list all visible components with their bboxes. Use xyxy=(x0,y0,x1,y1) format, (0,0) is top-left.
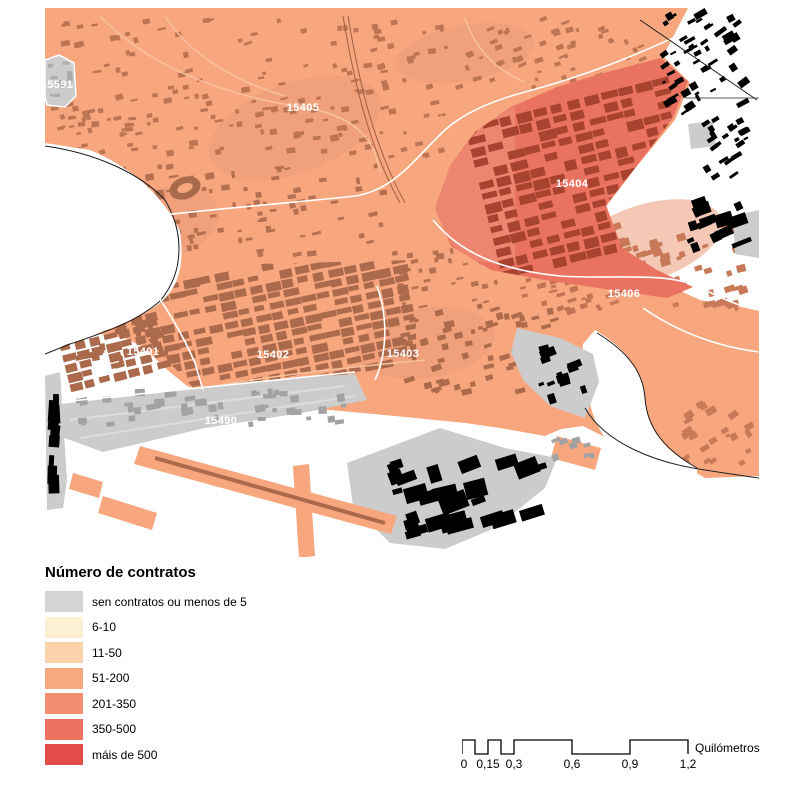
legend-item: sen contratos ou menos de 5 xyxy=(45,591,385,612)
legend-label: máis de 500 xyxy=(92,748,157,762)
scale-tick: 0,3 xyxy=(506,757,523,771)
scale-tick: 0,6 xyxy=(564,757,581,771)
legend-label: 6-10 xyxy=(92,620,116,634)
legend-label: sen contratos ou menos de 5 xyxy=(92,595,247,609)
zone-label-15402: 15402 xyxy=(257,349,290,361)
legend-swatch-dark-salmon xyxy=(45,719,83,740)
zone-label-15404: 15404 xyxy=(556,178,589,190)
zone-label-15490: 15490 xyxy=(205,415,238,427)
legend-label: 11-50 xyxy=(92,646,122,660)
legend-item: 6-10 xyxy=(45,617,385,638)
scale-bar-graphic xyxy=(462,739,702,757)
scale-unit-label: Quilómetros xyxy=(695,741,760,755)
zone-label-15591: 15591 xyxy=(45,79,73,91)
legend-label: 51-200 xyxy=(92,671,129,685)
map-canvas[interactable]: 15591 15405 15404 15406 15401 15402 1540… xyxy=(45,8,760,557)
zone-label-15401: 15401 xyxy=(127,346,160,358)
legend-label: 201-350 xyxy=(92,697,136,711)
legend: Número de contratos sen contratos ou men… xyxy=(45,564,385,770)
legend-label: 350-500 xyxy=(92,722,136,736)
legend-item: 11-50 xyxy=(45,642,385,663)
legend-swatch-grey xyxy=(45,591,83,612)
scale-tick: 0,15 xyxy=(476,757,499,771)
legend-item: 201-350 xyxy=(45,693,385,714)
scale-bar: 0 0,15 0,3 0,6 0,9 1,2 Quilómetros xyxy=(455,733,790,778)
legend-item: 51-200 xyxy=(45,668,385,689)
scale-tick: 0 xyxy=(461,757,468,771)
legend-swatch-light-peach xyxy=(45,642,83,663)
scale-tick: 0,9 xyxy=(622,757,639,771)
legend-swatch-peach xyxy=(45,668,83,689)
scale-tick: 1,2 xyxy=(680,757,697,771)
legend-item: máis de 500 xyxy=(45,744,385,765)
legend-title: Número de contratos xyxy=(45,564,385,581)
legend-swatch-salmon xyxy=(45,693,83,714)
legend-item: 350-500 xyxy=(45,719,385,740)
zone-label-15403: 15403 xyxy=(387,348,420,360)
legend-swatch-red xyxy=(45,744,83,765)
zone-label-15406: 15406 xyxy=(608,288,641,300)
zone-label-15405: 15405 xyxy=(287,102,320,114)
scale-ticks: 0 0,15 0,3 0,6 0,9 1,2 xyxy=(462,757,782,773)
legend-swatch-cream xyxy=(45,617,83,638)
